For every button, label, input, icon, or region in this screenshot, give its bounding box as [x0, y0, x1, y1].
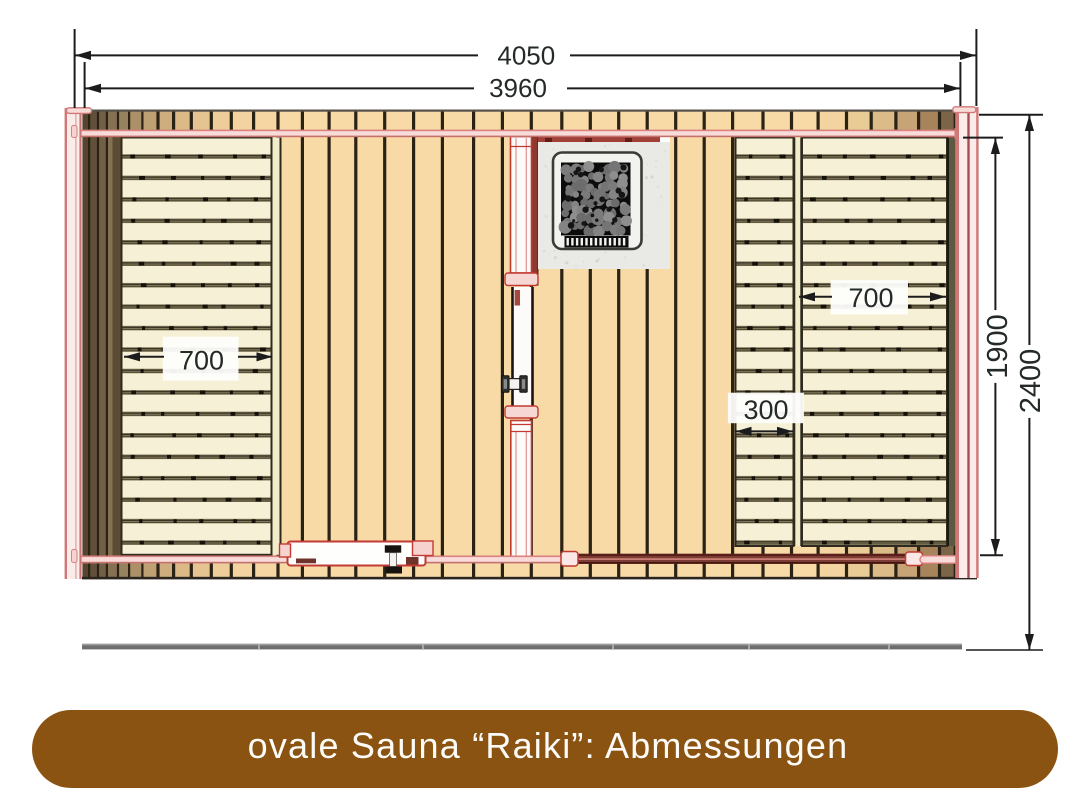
- svg-text:700: 700: [179, 346, 224, 376]
- svg-text:1900: 1900: [982, 314, 1014, 379]
- svg-text:300: 300: [743, 395, 788, 425]
- svg-text:ovale Sauna “Raiki”: Abmessung: ovale Sauna “Raiki”: Abmessungen: [248, 725, 849, 766]
- svg-text:700: 700: [848, 283, 893, 313]
- svg-text:2400: 2400: [1015, 349, 1047, 414]
- svg-text:4050: 4050: [497, 41, 555, 71]
- svg-text:3960: 3960: [489, 73, 547, 103]
